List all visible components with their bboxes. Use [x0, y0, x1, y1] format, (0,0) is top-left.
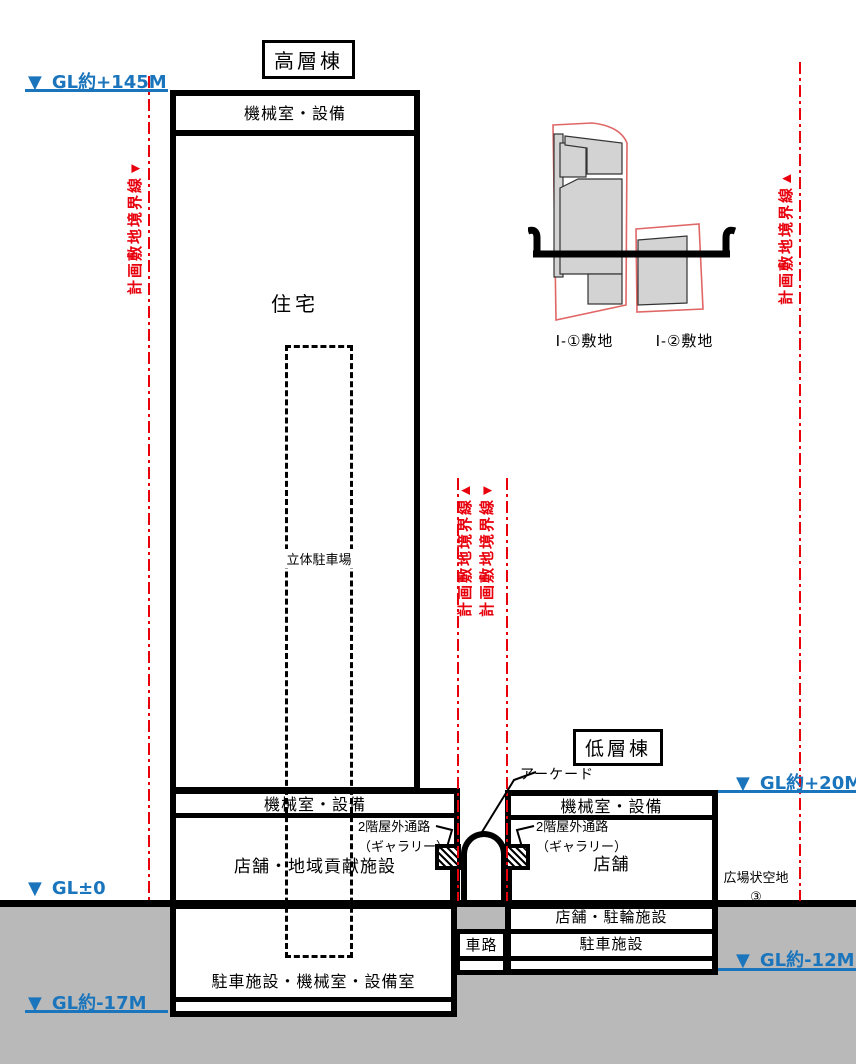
parcel1-building-lower-tab	[588, 274, 622, 304]
parking-tower-label: 立体駐車場	[283, 549, 355, 568]
boundary-line-left	[148, 76, 150, 901]
boundary-triangle-icon: ▲	[778, 169, 795, 186]
residence-label: 住宅	[170, 288, 420, 317]
level-line-gl-plus20	[718, 790, 856, 793]
level-triangle-icon: ▼	[28, 878, 42, 899]
boundary-label-left: 計画敷地境界線▼	[126, 159, 146, 295]
left-basement-label: 駐車施設・機械室・設備室	[170, 968, 457, 992]
plaza-label: 広場状空地 ③	[718, 869, 794, 907]
plaza-label-line2: ③	[750, 889, 762, 904]
boundary-label-text: 計画敷地境界線	[127, 176, 144, 295]
level-line-gl-plus145	[25, 89, 168, 92]
left-basement-slab-line	[176, 997, 451, 1002]
boundary-label-right: 計画敷地境界線▲	[777, 169, 797, 305]
low-rise-machine-room-label: 機械室・設備	[505, 793, 718, 817]
section-cut-hook-left	[528, 230, 537, 256]
plaza-label-line1: 広場状空地	[723, 870, 788, 885]
boundary-label-center-left: 計画敷地境界線▲	[456, 481, 476, 617]
gallery-label-line2: （ギャラリー）	[358, 839, 449, 854]
gallery-label-right: 2階屋外通路 （ギャラリー）	[536, 817, 626, 857]
level-line-gl-minus17	[25, 1010, 168, 1013]
boundary-label-text: 計画敷地境界線	[457, 498, 474, 617]
boundary-line-center-right	[506, 478, 508, 901]
gallery-label-line1: 2階屋外通路	[536, 819, 608, 834]
gallery-label-line1: 2階屋外通路	[358, 819, 430, 834]
boundary-label-center-right: 計画敷地境界線▼	[478, 481, 498, 617]
low-rise-title: 低層棟	[573, 729, 663, 766]
level-label: GL±0	[52, 878, 106, 899]
boundary-label-text: 計画敷地境界線	[479, 498, 496, 617]
section-cut-hook-right	[726, 230, 735, 256]
parcel1-building-upper-block	[560, 143, 586, 177]
boundary-triangle-icon: ▼	[127, 159, 144, 176]
arcade-arch	[461, 831, 507, 903]
level-line-gl-minus12	[718, 968, 856, 971]
gallery-label-left: 2階屋外通路 （ギャラリー）	[358, 817, 448, 857]
podium-machine-room-label: 機械室・設備	[170, 791, 460, 815]
tower-machine-room-label: 機械室・設備	[170, 100, 420, 124]
level-marker-gl-zero: ▼GL±0	[28, 878, 106, 899]
driveway-label: 車路	[455, 934, 508, 955]
parcel2-label: Ⅰ-②敷地	[642, 330, 727, 351]
boundary-triangle-icon: ▲	[457, 481, 474, 498]
boundary-triangle-icon: ▼	[479, 481, 496, 498]
boundary-label-text: 計画敷地境界線	[778, 186, 795, 305]
tower-machine-room-divider	[176, 130, 414, 136]
driveway-bottom-divider	[460, 956, 503, 961]
parcel1-label: Ⅰ-①敷地	[542, 330, 627, 351]
right-basement-divider-2	[511, 956, 712, 961]
parking-facility-label: 駐車施設	[505, 933, 718, 954]
shop-bicycle-label: 店舗・駐輪施設	[505, 906, 718, 927]
section-drawing: Ⅰ-①敷地 Ⅰ-②敷地 計画敷地境界線▼ 計画敷地境界線▲ 計画敷地境界線▼ 計…	[0, 0, 856, 1064]
parcel1-building-main-block	[560, 179, 622, 274]
arcade-label: アーケード	[520, 764, 594, 784]
parcel2-building-block	[638, 236, 687, 305]
gallery-label-line2: （ギャラリー）	[536, 839, 627, 854]
key-site-plan	[528, 110, 743, 360]
high-rise-title: 高層棟	[262, 40, 355, 79]
